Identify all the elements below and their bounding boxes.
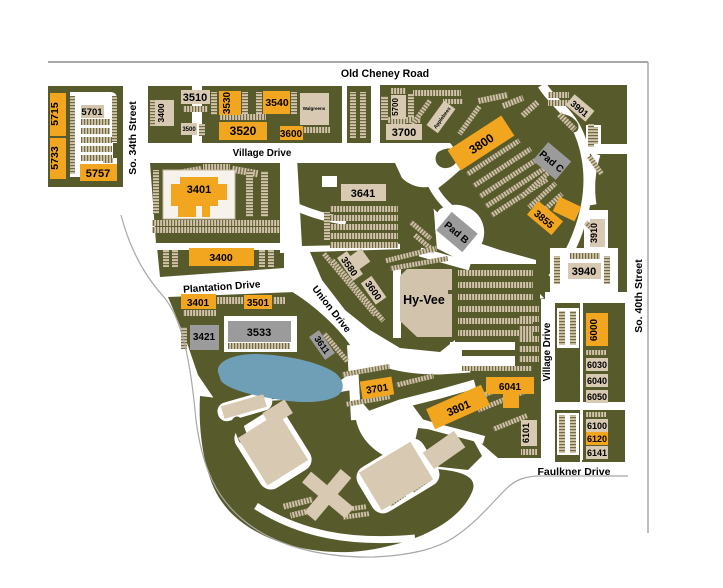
svg-text:5733: 5733	[49, 146, 61, 170]
svg-text:3940: 3940	[572, 266, 596, 278]
svg-text:Village Drive: Village Drive	[233, 148, 292, 159]
svg-text:Hy-Vee: Hy-Vee	[403, 293, 445, 307]
svg-text:6041: 6041	[499, 382, 522, 393]
svg-text:3641: 3641	[351, 188, 375, 200]
svg-text:So. 40th Street: So. 40th Street	[633, 259, 645, 333]
svg-text:6141: 6141	[587, 448, 607, 458]
svg-text:5715: 5715	[49, 102, 61, 126]
svg-text:3401: 3401	[187, 298, 210, 309]
svg-text:6000: 6000	[589, 318, 600, 341]
svg-text:3400: 3400	[156, 103, 166, 122]
svg-text:3700: 3700	[392, 127, 416, 139]
svg-text:Walgreens: Walgreens	[303, 106, 326, 111]
svg-text:3530: 3530	[222, 91, 233, 114]
svg-text:3421: 3421	[193, 332, 216, 343]
svg-text:3510: 3510	[183, 92, 207, 104]
svg-text:3540: 3540	[265, 97, 289, 109]
svg-text:3400: 3400	[209, 252, 233, 264]
svg-text:3600: 3600	[280, 129, 303, 140]
svg-text:3501: 3501	[247, 298, 270, 309]
svg-text:5701: 5701	[81, 107, 103, 118]
svg-text:5700: 5700	[391, 98, 400, 116]
svg-text:6040: 6040	[587, 376, 607, 386]
svg-text:6101: 6101	[521, 423, 531, 443]
svg-text:5757: 5757	[86, 168, 110, 180]
svg-text:Village Drive: Village Drive	[542, 322, 553, 381]
svg-text:3910: 3910	[589, 223, 599, 243]
svg-text:Faulkner Drive: Faulkner Drive	[538, 466, 611, 478]
svg-text:3500: 3500	[182, 127, 196, 133]
svg-text:6030: 6030	[587, 360, 607, 370]
svg-text:3520: 3520	[230, 124, 257, 138]
svg-text:6050: 6050	[587, 392, 607, 402]
svg-text:6120: 6120	[587, 434, 607, 444]
svg-text:6100: 6100	[587, 421, 607, 431]
svg-text:So. 34th Street: So. 34th Street	[127, 101, 139, 175]
svg-text:Old Cheney Road: Old Cheney Road	[341, 68, 429, 80]
svg-text:3401: 3401	[187, 184, 211, 196]
svg-text:3533: 3533	[247, 327, 271, 339]
